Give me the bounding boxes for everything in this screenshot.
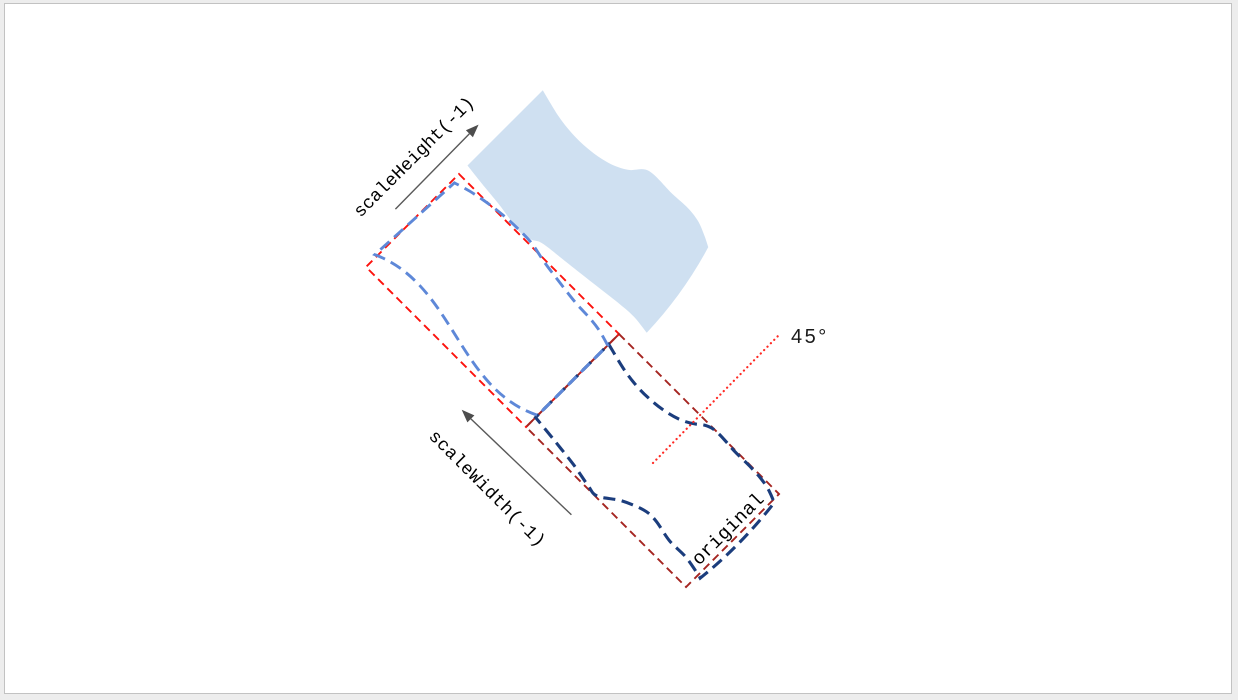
svg-text:scaleWidth(-1): scaleWidth(-1) — [424, 427, 549, 552]
svg-text:45°: 45° — [791, 326, 829, 348]
svg-text:original: original — [688, 488, 770, 570]
svg-text:scaleHeight(-1): scaleHeight(-1) — [351, 94, 480, 223]
